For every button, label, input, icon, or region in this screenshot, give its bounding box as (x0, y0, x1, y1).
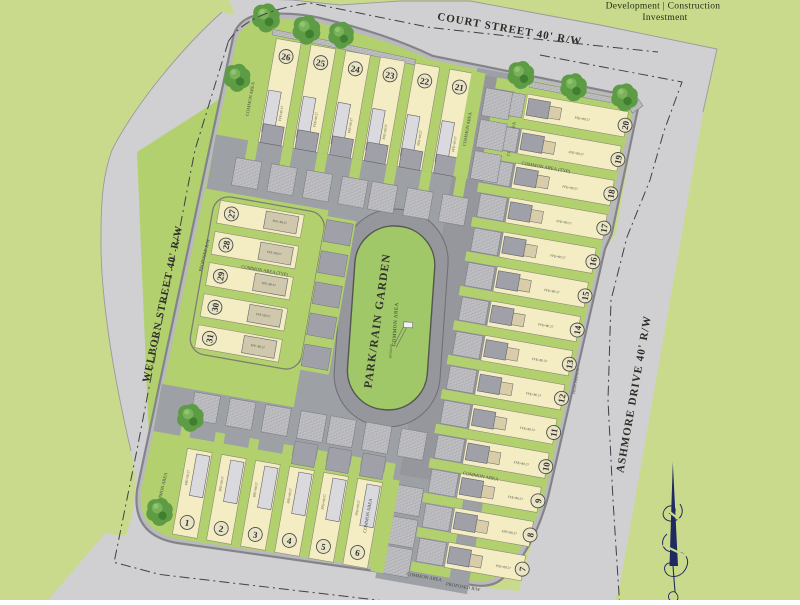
svg-text:Development | Construction: Development | Construction (606, 2, 721, 12)
svg-text:Investment: Investment (642, 13, 687, 23)
